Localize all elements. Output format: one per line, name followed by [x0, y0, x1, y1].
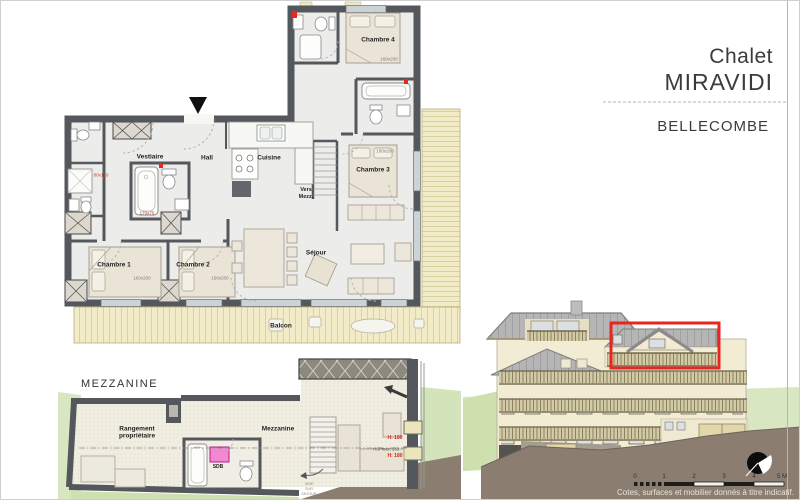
- vide-label-1: VIDE: [305, 482, 314, 486]
- room-label-mezzanine: Mezzanine: [262, 425, 295, 432]
- scale-tick-4: 4: [752, 474, 755, 480]
- vers-mezz-label-2: Mezz.: [299, 194, 314, 200]
- vers-mezz-label-1: Vers: [300, 187, 312, 193]
- room-label-cuisine: Cuisine: [257, 154, 280, 161]
- vide-label-2: SUR: [305, 487, 313, 491]
- mezzanine-title: MEZZANINE: [81, 378, 158, 390]
- dim-chambre3: 160x200: [376, 148, 393, 153]
- height-annotation-upper: H: 180: [387, 436, 402, 442]
- dim-chambre2: 160x200: [211, 275, 228, 280]
- room-label-sejour: Séjour: [306, 249, 326, 256]
- location-label: BELLECOMBE: [657, 118, 769, 135]
- dim-chambre1: 160x200: [133, 275, 150, 280]
- scale-tick-5: 5 M: [777, 474, 787, 480]
- room-label-sdb: SDB: [213, 465, 224, 471]
- room-label-chambre2: Chambre 2: [176, 261, 210, 268]
- main-floor-plan: [65, 2, 460, 343]
- room-label-chambre4: Chambre 4: [361, 36, 395, 43]
- scale-tick-2: 2: [692, 474, 695, 480]
- title-block: Chalet MIRAVIDI: [664, 45, 773, 96]
- room-label-chambre3: Chambre 3: [356, 166, 390, 173]
- hsp-annotation: HSPmax: 133: [373, 448, 399, 453]
- room-label-vestiaire: Vestiaire: [137, 153, 164, 160]
- room-label-balcon: Balcon: [270, 322, 292, 329]
- dim-chambre4: 160x200: [380, 56, 397, 61]
- room-label-rangement-2: propriétaire: [119, 432, 155, 439]
- vide-label-3: SEJOUR: [301, 492, 316, 496]
- chalet-name: MIRAVIDI: [664, 69, 773, 96]
- room-label-chambre1: Chambre 1: [97, 261, 131, 268]
- scale-tick-0: 0: [633, 474, 636, 480]
- room-label-hall: Hall: [201, 154, 213, 161]
- scale-tick-1: 1: [662, 474, 665, 480]
- pink-shower-fixture: [210, 447, 229, 462]
- building-elevation: [463, 301, 800, 500]
- scale-tick-3: 3: [722, 474, 725, 480]
- disclaimer-text: Cotes, surfaces et mobilier donnés à tit…: [617, 488, 794, 497]
- chalet-word: Chalet: [664, 45, 773, 69]
- entrance-arrow-icon: [189, 97, 207, 114]
- dim-shower: 80x120: [94, 172, 109, 177]
- dim-bathtub: 170x75: [140, 210, 155, 215]
- architectural-plan-sheet: Chalet MIRAVIDI BELLECOMBE MEZZANINE Ves…: [0, 0, 800, 500]
- height-annotation-lower: H: 180: [387, 454, 402, 460]
